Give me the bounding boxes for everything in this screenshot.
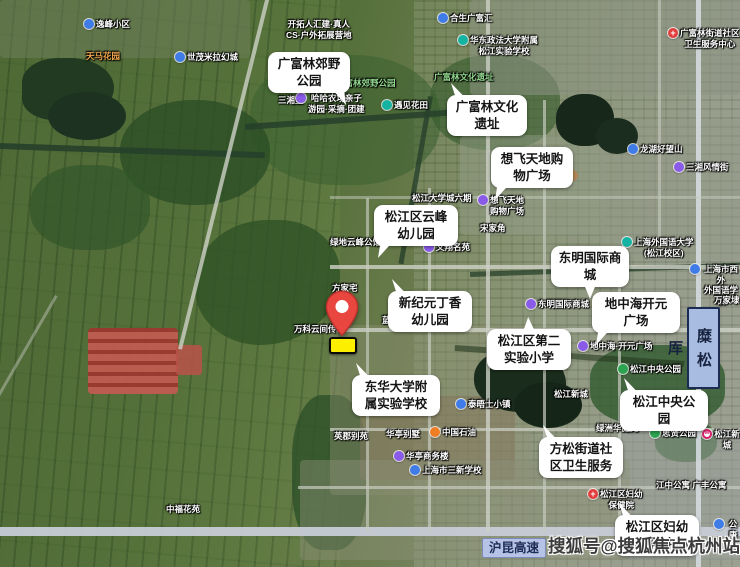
poi-label: +松江区妇幼 保健院 [588, 489, 643, 510]
callout-tail [356, 363, 372, 378]
poi-text: 龙湖好望山 [640, 144, 683, 155]
poi-label: 地中海·开元广场 [578, 341, 652, 352]
poi-text: 万家埭 [714, 295, 740, 306]
poi-label: 哈哈农场亲子 游园·采摘·团建 [296, 93, 365, 114]
poi-label: 松江新城 [554, 389, 588, 400]
callout-tail [392, 279, 408, 294]
callout-text: 松江中央公 [623, 394, 705, 411]
terrain-patch [88, 328, 178, 394]
terrain-patch [120, 100, 270, 205]
blue-poi-icon [175, 52, 185, 62]
callout-text: 地中海开元 [595, 296, 677, 313]
location-pin-icon [325, 290, 359, 337]
purple-poi-icon [296, 93, 306, 103]
poi-label: 华亭商务楼 [394, 451, 449, 462]
poi-text: 英郡别苑 [334, 431, 368, 442]
teal-poi-icon [622, 237, 632, 247]
poi-text: 华亭别墅 [386, 429, 420, 440]
poi-text: 哈哈农场亲子 游园·采摘·团建 [308, 93, 365, 114]
map-callout: 地中海开元广场 [592, 292, 680, 333]
poi-text: 松江新城 [714, 429, 740, 450]
blue-poi-icon [410, 465, 420, 475]
callout-text: 东明国际商 [554, 250, 626, 267]
callout-tail [543, 425, 559, 440]
map-callout: 松江区云峰幼儿园 [374, 205, 458, 246]
poi-text: 松江大学城六期 [412, 193, 472, 204]
poi-text: 开拓人汇建·真人 CS·户外拓展营地 [286, 19, 352, 40]
poi-text: 泰晤士小镇 [468, 399, 511, 410]
purple-poi-icon [478, 195, 488, 205]
callout-text: 园 [623, 411, 705, 428]
teal-poi-icon [458, 35, 468, 45]
callout-text: 想飞天地购 [494, 151, 570, 168]
callout-tail [521, 317, 537, 332]
poi-text: 上海市三新学校 [422, 465, 482, 476]
poi-text: 遇见花田 [394, 100, 428, 111]
road-line [366, 198, 369, 532]
blue-poi-icon [714, 519, 724, 529]
map-callout: 方松街道社区卫生服务 [539, 437, 623, 478]
poi-label: M松江新城 [702, 429, 740, 450]
poi-label: 广富林文化遗址 [434, 72, 494, 83]
poi-text: 想飞天地 购物广场 [490, 195, 524, 216]
poi-label: 英郡别苑 [334, 431, 368, 442]
poi-text: 三湘风情街 [686, 162, 729, 173]
poi-text: 世茂米拉幻城 [187, 52, 238, 63]
orange-poi-icon [430, 427, 440, 437]
redcross-poi-icon: + [668, 28, 678, 38]
metro-poi-icon: M [702, 429, 712, 439]
callout-text: 幼儿园 [377, 226, 455, 243]
map-callout: 松江区第二实验小学 [487, 329, 571, 370]
road-line [330, 265, 740, 269]
river-line [0, 143, 265, 158]
poi-label: 松江大学城六期 [412, 193, 472, 204]
poi-label: 世茂米拉幻城 [175, 52, 238, 63]
callout-text: 实验小学 [490, 350, 568, 367]
green-poi-icon [618, 364, 628, 374]
poi-label: 天马花园 [86, 51, 120, 62]
poi-text: 华亭商务楼 [406, 451, 449, 462]
poi-label: 上海外国语大学 (松江校区) [622, 237, 694, 258]
poi-label: 中国石油 [430, 427, 476, 438]
teal-poi-icon [382, 100, 392, 110]
callout-text: 城 [554, 267, 626, 284]
poi-label: 合生广富汇 [438, 13, 493, 24]
poi-label: 松江中央公园 [618, 364, 681, 375]
callout-text: 物广场 [494, 168, 570, 185]
terrain-patch [292, 395, 367, 550]
terrain-patch [176, 345, 202, 375]
poi-text: 松江新城 [554, 389, 588, 400]
poi-text: 东明国际商城 [538, 299, 589, 310]
poi-text: 宋家角 [480, 223, 506, 234]
map-callout: 松江中央公园 [620, 390, 708, 431]
blue-poi-icon [628, 144, 638, 154]
road-line [658, 0, 661, 252]
purple-poi-icon [394, 451, 404, 461]
callout-tail [451, 83, 467, 98]
site-marker [329, 337, 357, 354]
terrain-patch [556, 94, 614, 146]
poi-label: 三湘风情街 [674, 162, 729, 173]
terrain-patch [48, 92, 126, 140]
map-callout: 想飞天地购物广场 [491, 147, 573, 188]
poi-text: 地中海·开元广场 [590, 341, 652, 352]
terrain-patch [30, 165, 150, 250]
map-callout: 广富林郊野公园 [268, 52, 350, 93]
callout-text: 广场 [595, 313, 677, 330]
callout-text: 广富林文化 [450, 99, 524, 116]
poi-label: 江中公寓 广丰公寓 [656, 480, 726, 491]
map-callout: 东华大学附属实验学校 [352, 375, 440, 416]
blue-poi-icon [438, 13, 448, 23]
purple-poi-icon [526, 299, 536, 309]
poi-label: 逸峰小区 [84, 19, 130, 30]
blue-poi-icon [690, 264, 700, 274]
poi-label: 上海市三新学校 [410, 465, 482, 476]
callout-text: 方松街道社 [542, 441, 620, 458]
poi-text: 松江中央公园 [630, 364, 681, 375]
poi-text: 广富林街道社区 卫生服务中心 [680, 28, 740, 49]
callout-text: 新纪元丁香 [391, 295, 469, 312]
purple-poi-icon [674, 162, 684, 172]
blue-poi-icon [84, 19, 94, 29]
callout-text: 公园 [271, 73, 347, 90]
purple-poi-icon [578, 341, 588, 351]
poi-label: 龙湖好望山 [628, 144, 683, 155]
poi-label: 泰晤士小镇 [456, 399, 511, 410]
callout-tail [378, 243, 394, 258]
watermark: 搜狐号@搜狐焦点杭州站 [548, 533, 740, 558]
blue-poi-icon [456, 399, 466, 409]
map-callout: 广富林文化遗址 [447, 95, 527, 136]
poi-label: 中福花苑 [166, 504, 200, 515]
poi-text: 江中公寓 广丰公寓 [656, 480, 726, 491]
poi-label: 想飞天地 购物广场 [478, 195, 524, 216]
poi-label: 开拓人汇建·真人 CS·户外拓展营地 [286, 19, 352, 40]
poi-label: 华东政法大学附属 松江实验学校 [458, 35, 538, 56]
callout-text: 遗址 [450, 116, 524, 133]
road-line [0, 295, 58, 567]
callout-text: 幼儿园 [391, 312, 469, 329]
redcross-poi-icon: + [588, 489, 598, 499]
map-callout: 新纪元丁香幼儿园 [388, 291, 472, 332]
poi-label: 华亭别墅 [386, 429, 420, 440]
callout-text: 东华大学附 [355, 379, 437, 396]
poi-label: 东明国际商城 [526, 299, 589, 310]
vertical-place-sign: 糜松厍 [687, 307, 720, 389]
expressway-sign: 沪昆高速 [482, 538, 546, 558]
poi-text: 天马花园 [86, 51, 120, 62]
callout-text: 广富林郊野 [271, 56, 347, 73]
poi-text: 上海外国语大学 (松江校区) [634, 237, 694, 258]
poi-text: 华东政法大学附属 松江实验学校 [470, 35, 538, 56]
poi-text: 合生广富汇 [450, 13, 493, 24]
poi-label: 万家埭 [714, 295, 740, 306]
poi-text: 中国石油 [442, 427, 476, 438]
poi-label: 遇见花田 [382, 100, 428, 111]
poi-text: 逸峰小区 [96, 19, 130, 30]
poi-text: 广富林文化遗址 [434, 72, 494, 83]
callout-tail [624, 378, 640, 393]
callout-text: 松江区云峰 [377, 209, 455, 226]
callout-text: 区卫生服务 [542, 458, 620, 475]
satellite-map-canvas[interactable]: 逸峰小区开拓人汇建·真人 CS·户外拓展营地合生广富汇华东政法大学附属 松江实验… [0, 0, 740, 567]
poi-label: +广富林街道社区 卫生服务中心 [668, 28, 740, 49]
poi-text: 中福花苑 [166, 504, 200, 515]
callout-text: 属实验学校 [355, 396, 437, 413]
terrain-patch [22, 58, 114, 120]
road-line [330, 196, 740, 199]
callout-text: 松江区第二 [490, 333, 568, 350]
poi-label: 宋家角 [480, 223, 506, 234]
map-callout: 东明国际商城 [551, 246, 629, 287]
